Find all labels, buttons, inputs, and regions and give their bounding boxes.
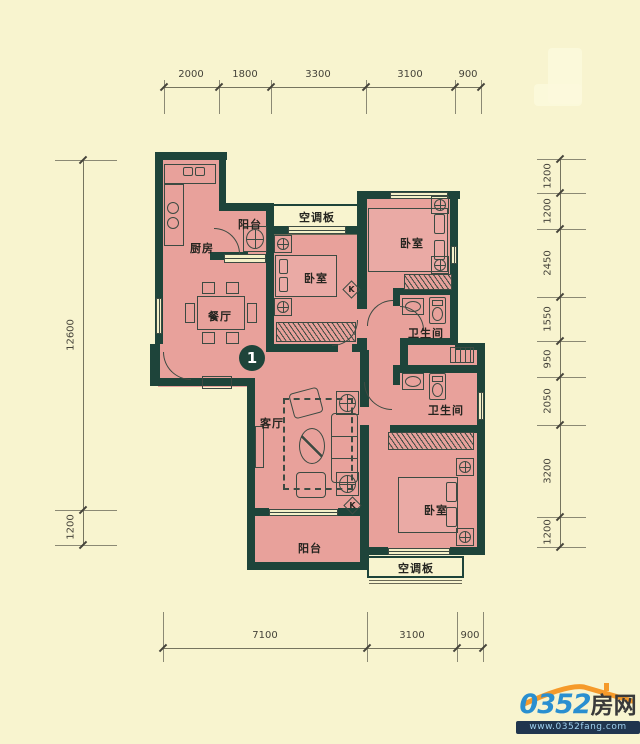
wall-segment (155, 152, 227, 160)
chair (202, 282, 215, 294)
side-table-plant (336, 472, 359, 496)
extension-line (457, 612, 458, 662)
dim-label: 900 (460, 630, 479, 641)
door-mark-label: K (347, 500, 358, 511)
room-label-living: 客厅 (260, 415, 284, 431)
wall-segment (477, 343, 485, 555)
room-label-bedroom-top-right: 卧室 (400, 235, 424, 251)
window (451, 246, 457, 264)
wall-segment (393, 288, 400, 306)
room-label-balcony-top: 阳台 (238, 216, 262, 232)
room-label-bath-top: 卫生间 (408, 325, 444, 341)
chair (226, 332, 239, 344)
room-label-kitchen: 厨房 (190, 240, 214, 256)
wall-segment (400, 340, 408, 368)
window (224, 254, 266, 263)
chair (226, 282, 239, 294)
coffee-table (299, 428, 325, 464)
toilet (429, 297, 446, 324)
extension-line (55, 510, 117, 511)
nightstand (431, 256, 449, 274)
nightstand (274, 235, 292, 253)
extension-line (537, 547, 586, 548)
chair (202, 332, 215, 344)
window (269, 509, 338, 516)
room-label-bedroom-bottom-right: 卧室 (424, 502, 448, 518)
wall-segment (266, 228, 274, 352)
dim-label: 1550 (543, 306, 554, 331)
extension-line (537, 229, 586, 230)
nightstand (456, 528, 474, 546)
wall-segment (352, 344, 366, 352)
logo-suffix: 房网 (591, 695, 637, 718)
wall-segment (450, 547, 485, 555)
wall-segment (360, 508, 369, 570)
room-label-balcony-bottom: 阳台 (298, 540, 322, 556)
extension-line (55, 545, 117, 546)
dim-label: 950 (543, 349, 554, 368)
wall-segment (247, 562, 369, 570)
wall-segment (266, 344, 338, 352)
extension-line (537, 341, 586, 342)
wall-segment (219, 158, 226, 208)
toilet (429, 373, 446, 400)
logo-website: www.0352fang.com (516, 721, 640, 734)
dim-label: 1200 (543, 198, 554, 223)
dim-label: 7100 (252, 630, 277, 641)
extension-line (537, 159, 586, 160)
extension-line (537, 425, 586, 426)
room-label-ac-top: 空调板 (299, 209, 335, 225)
logo-number: 0352 (519, 691, 590, 718)
sink-basin (195, 167, 205, 176)
wardrobe (388, 432, 474, 450)
pillow (446, 482, 457, 502)
dim-label: 3300 (305, 69, 330, 80)
wall-segment (247, 508, 269, 516)
unit-number-badge: 1 (239, 345, 265, 371)
dim-label: 2000 (178, 69, 203, 80)
pillow (279, 259, 288, 274)
pillow (434, 214, 445, 234)
armchair (296, 472, 326, 498)
dim-line-top (164, 87, 482, 88)
dim-label: 1200 (543, 519, 554, 544)
extension-line (537, 297, 586, 298)
wall-segment (393, 365, 478, 373)
watermark-blob (534, 84, 582, 106)
floorplan-canvas: 2000 1800 3300 3100 900 7100 3100 900 12… (0, 0, 640, 744)
window (478, 392, 484, 420)
chair (247, 303, 257, 323)
kitchen-counter (164, 184, 184, 246)
extension-line (537, 377, 586, 378)
room-label-ac-bottom: 空调板 (398, 560, 434, 576)
extension-line (55, 160, 117, 161)
room-label-bath-bottom: 卫生间 (428, 402, 464, 418)
extension-line (483, 612, 484, 662)
wall-segment (360, 350, 369, 407)
dim-label: 3100 (399, 630, 424, 641)
door-mark-label: K (346, 284, 357, 295)
wall-segment (247, 385, 255, 570)
dim-line-right (560, 159, 561, 548)
room-label-bedroom-mid: 卧室 (304, 270, 328, 286)
wall-segment (266, 226, 288, 234)
tv-stand (255, 426, 264, 468)
logo: 0352 房网 (516, 691, 640, 718)
dim-line-left (83, 160, 84, 546)
shoe-cabinet (202, 376, 232, 389)
duct-shaft (450, 347, 474, 363)
chair (185, 303, 195, 323)
stove-burner (167, 217, 179, 229)
window (156, 298, 162, 334)
dim-label: 900 (458, 69, 477, 80)
extension-line (537, 517, 586, 518)
window (388, 548, 450, 555)
dim-label: 2050 (543, 388, 554, 413)
dim-label: 12600 (66, 319, 77, 351)
extension-line (537, 193, 586, 194)
dim-line-bottom (163, 648, 484, 649)
sink-basin (183, 167, 193, 176)
dim-label: 3200 (543, 458, 554, 483)
nightstand (431, 196, 449, 214)
nightstand (274, 298, 292, 316)
ac-board-hatch (369, 579, 462, 586)
room-label-dining: 餐厅 (208, 308, 232, 324)
nightstand (456, 458, 474, 476)
window (288, 226, 346, 234)
bathroom-sink (402, 373, 424, 390)
extension-line (163, 612, 164, 662)
wall-segment (450, 191, 458, 345)
dim-label: 1800 (232, 69, 257, 80)
wardrobe (404, 274, 452, 290)
side-table-plant (336, 391, 359, 415)
dim-label: 2450 (543, 250, 554, 275)
dim-label: 1200 (543, 163, 554, 188)
pillow (279, 277, 288, 292)
wall-segment (393, 365, 400, 385)
dim-label: 3100 (397, 69, 422, 80)
dim-label: 1200 (66, 514, 77, 539)
extension-line (367, 612, 368, 662)
stove-burner (167, 202, 179, 214)
